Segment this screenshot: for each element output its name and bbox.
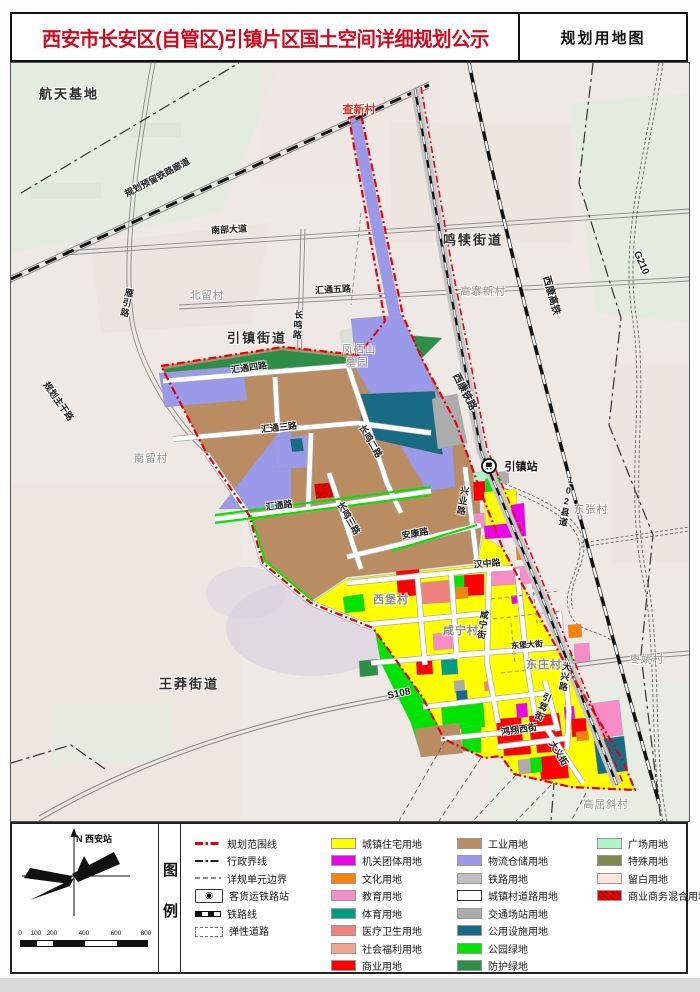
rail-station-swatch [195,889,223,903]
legend-item: 体育用地 [331,906,449,921]
scale-tick-label: 800 [141,930,152,937]
red-dashdot-swatch [195,837,221,849]
legend-item-label: 商业商务混合用地 [628,888,700,903]
legend-item: 弹性道路 [195,924,323,939]
black-dashdot-swatch [195,855,221,867]
legend-item: 留白用地 [597,871,700,886]
legend-item-label: 公园绿地 [488,941,528,956]
legend-item: 城镇住宅用地 [331,836,449,851]
legend-item: 商业用地 [331,959,449,974]
legend-item: 公园绿地 [457,941,589,956]
legend-item-label: 客货运铁路站 [229,888,289,903]
legend-item: 行政界线 [195,854,323,869]
legend-item: 客货运铁路站 [195,889,323,904]
legend-item-label: 物流仓储用地 [488,853,548,868]
landuse-color-swatch [457,890,482,901]
north-label: N 西安站 [76,832,112,845]
legend-title-cell: 图例 [159,824,181,972]
bottom-margin-strip [0,978,700,992]
landuse-color-swatch [331,960,356,971]
landuse-color-swatch [597,873,622,884]
legend-item-label: 社会福利用地 [362,941,422,956]
legend-item: 工业用地 [457,836,589,851]
legend-item-label: 铁路线 [227,906,257,921]
legend-item: 医疗卫生用地 [331,924,449,939]
landuse-color-swatch [331,873,356,884]
legend-item-label: 弹性道路 [229,923,269,938]
gray-dash-swatch [195,872,221,884]
scale-tick-label: 200 [47,930,58,937]
legend-item: 商业商务混合用地 [597,889,700,904]
landuse-color-swatch [457,925,482,936]
legend-item-label: 防护绿地 [488,958,528,973]
legend-line-column: 规划范围线行政界线详规单元边界客货运铁路站铁路线弹性道路 [195,836,323,966]
legend-item: 社会福利用地 [331,941,449,956]
landuse-color-swatch [331,908,356,919]
legend-item-label: 工业用地 [488,836,528,851]
legend-fill-column-2: 工业用地物流仓储用地铁路用地城镇村道路用地交通场站用地公用设施用地公园绿地防护绿… [457,836,589,966]
scale-numbers: 0100200400600800 [20,930,148,940]
scale-tick-label: 400 [79,930,90,937]
legend-item-label: 特殊用地 [628,853,668,868]
railline-swatch [195,907,221,919]
landuse-color-swatch [457,873,482,884]
compass-panel: N 西安站 0100200400600800 [12,824,159,972]
landuse-color-swatch [331,925,356,936]
landuse-color-swatch [597,890,622,901]
elastic-swatch [195,927,223,937]
legend-item-label: 商业用地 [362,958,402,973]
legend-item: 铁路用地 [457,871,589,886]
legend-fill-column-3: 广场用地特殊用地留白用地商业商务混合用地 [597,836,700,966]
legend-item: 广场用地 [597,836,700,851]
landuse-color-swatch [331,943,356,954]
map-type-cell: 规划用地图 [520,14,686,60]
scale-segments [20,940,148,947]
legend-item: 教育用地 [331,889,449,904]
landuse-color-swatch [457,943,482,954]
legend-item-label: 体育用地 [362,906,402,921]
legend-item-label: 交通场站用地 [488,906,548,921]
legend-item-label: 文化用地 [362,871,402,886]
legend-items-panel: 规划范围线行政界线详规单元边界客货运铁路站铁路线弹性道路 城镇住宅用地机关团体用… [181,824,700,972]
landuse-color-swatch [597,838,622,849]
railway-station-icon [482,459,496,473]
landuse-color-swatch [457,838,482,849]
legend-item: 规划范围线 [195,836,323,851]
landuse-color-swatch [457,960,482,971]
landuse-color-swatch [331,838,356,849]
scale-tick-label: 100 [31,930,42,937]
legend-item-label: 教育用地 [362,888,402,903]
landuse-color-swatch [331,855,356,866]
legend-item: 防护绿地 [457,959,589,974]
legend-item-label: 留白用地 [628,871,668,886]
map-type-label: 规划用地图 [560,27,645,48]
map-graphics [11,63,689,821]
legend-item-label: 详规单元边界 [227,871,287,886]
page-title: 西安市长安区(自管区)引镇片区国土空间详细规划公示 [41,23,488,52]
legend-item-label: 广场用地 [628,836,668,851]
legend-item-label: 行政界线 [227,853,267,868]
legend-item: 文化用地 [331,871,449,886]
planning-notice-page: 西安市长安区(自管区)引镇片区国土空间详细规划公示 规划用地图 [0,0,700,992]
scale-bar: 0100200400600800 [20,930,148,947]
legend-item: 公用设施用地 [457,924,589,939]
landuse-color-swatch [457,908,482,919]
landuse-color-swatch [331,890,356,901]
legend-item-label: 城镇村道路用地 [488,888,558,903]
legend-item: 物流仓储用地 [457,854,589,869]
page-title-cell: 西安市长安区(自管区)引镇片区国土空间详细规划公示 [12,14,520,60]
map-canvas: 航天基地查新村鸣犊街道高寨新村北留村引镇街道凤栖山墓园南留村王莽街道东张村枣姚村… [10,62,690,822]
header-bar: 西安市长安区(自管区)引镇片区国土空间详细规划公示 规划用地图 [10,12,688,62]
landuse-color-swatch [457,855,482,866]
legend-item-label: 医疗卫生用地 [362,923,422,938]
scale-tick-label: 600 [111,930,122,937]
landuse-color-swatch [597,855,622,866]
legend-fill-column-1: 城镇住宅用地机关团体用地文化用地教育用地体育用地医疗卫生用地社会福利用地商业用地 [331,836,449,966]
legend-item-label: 城镇住宅用地 [362,836,422,851]
legend-item: 详规单元边界 [195,871,323,886]
legend-item: 铁路线 [195,906,323,921]
legend-item-label: 铁路用地 [488,871,528,886]
legend-box: N 西安站 0100200400600800 图例 规划范围线行政界线详规单元边 [10,822,688,974]
legend-item-label: 机关团体用地 [362,853,422,868]
scale-tick-label: 0 [18,930,22,937]
legend-item-label: 公用设施用地 [488,923,548,938]
legend-item-label: 规划范围线 [227,836,277,851]
legend-item: 机关团体用地 [331,854,449,869]
legend-item: 特殊用地 [597,854,700,869]
legend-item: 交通场站用地 [457,906,589,921]
legend-item: 城镇村道路用地 [457,889,589,904]
legend-title: 图例 [159,852,180,944]
